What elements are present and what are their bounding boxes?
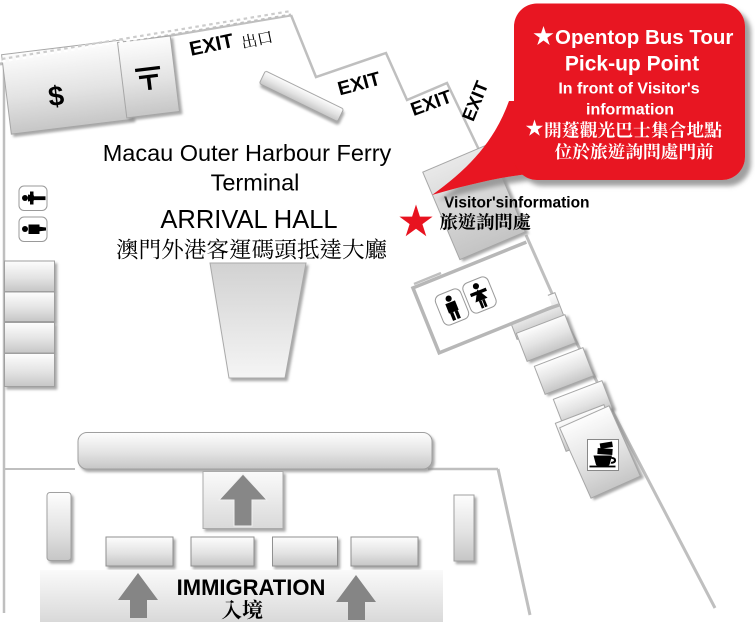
svg-text:Visitor'sinformation: Visitor'sinformation (444, 195, 590, 212)
svg-text:In front of Visitor's: In front of Visitor's (558, 81, 699, 98)
svg-text:Opentop Bus Tour: Opentop Bus Tour (555, 26, 733, 49)
svg-text:Terminal: Terminal (211, 170, 300, 196)
svg-text:IMMIGRATION: IMMIGRATION (177, 575, 326, 600)
svg-text:Macau Outer Harbour Ferry: Macau Outer Harbour Ferry (103, 140, 392, 166)
svg-text:ARRIVAL HALL: ARRIVAL HALL (160, 206, 337, 234)
svg-text:information: information (586, 102, 674, 119)
svg-text:Pick-up Point: Pick-up Point (565, 53, 699, 76)
